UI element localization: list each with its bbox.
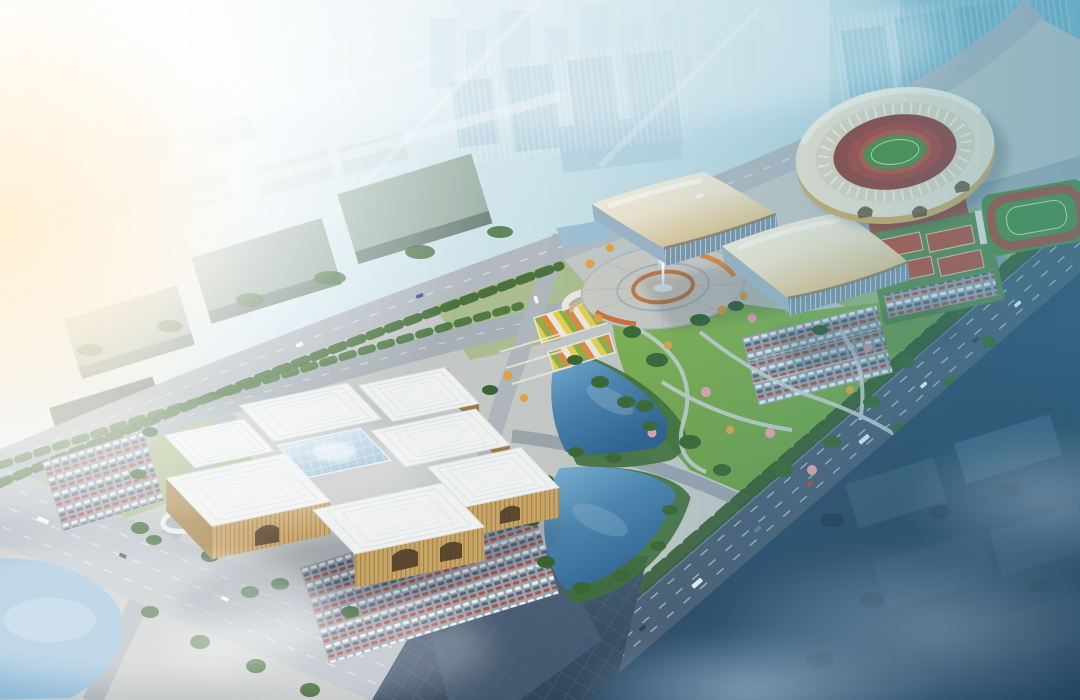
aerial-render bbox=[0, 0, 1080, 700]
mist-band-3 bbox=[170, 596, 490, 700]
render-canvas bbox=[0, 0, 1080, 700]
atmosphere-overlays bbox=[0, 0, 1080, 700]
